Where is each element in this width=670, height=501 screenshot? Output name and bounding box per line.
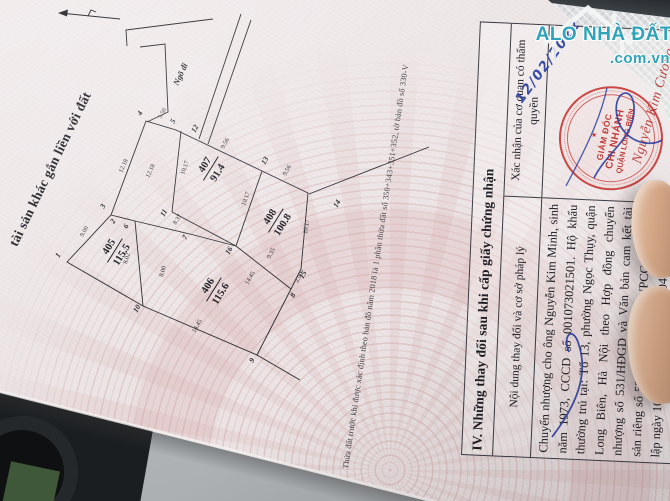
- blue-signature-squiggle: [594, 93, 662, 178]
- watermark-domain: .com.vn: [610, 50, 670, 67]
- watermark: ALO NHÀ ĐẤT .com.vn: [536, 0, 670, 84]
- blue-signature-stroke: [566, 88, 607, 186]
- blue-flourish: [552, 334, 582, 437]
- photo-of-land-certificate: tài sản khác gắn liền với đất Thửa đất t…: [0, 0, 670, 501]
- watermark-title: ALO NHÀ ĐẤT: [536, 24, 670, 46]
